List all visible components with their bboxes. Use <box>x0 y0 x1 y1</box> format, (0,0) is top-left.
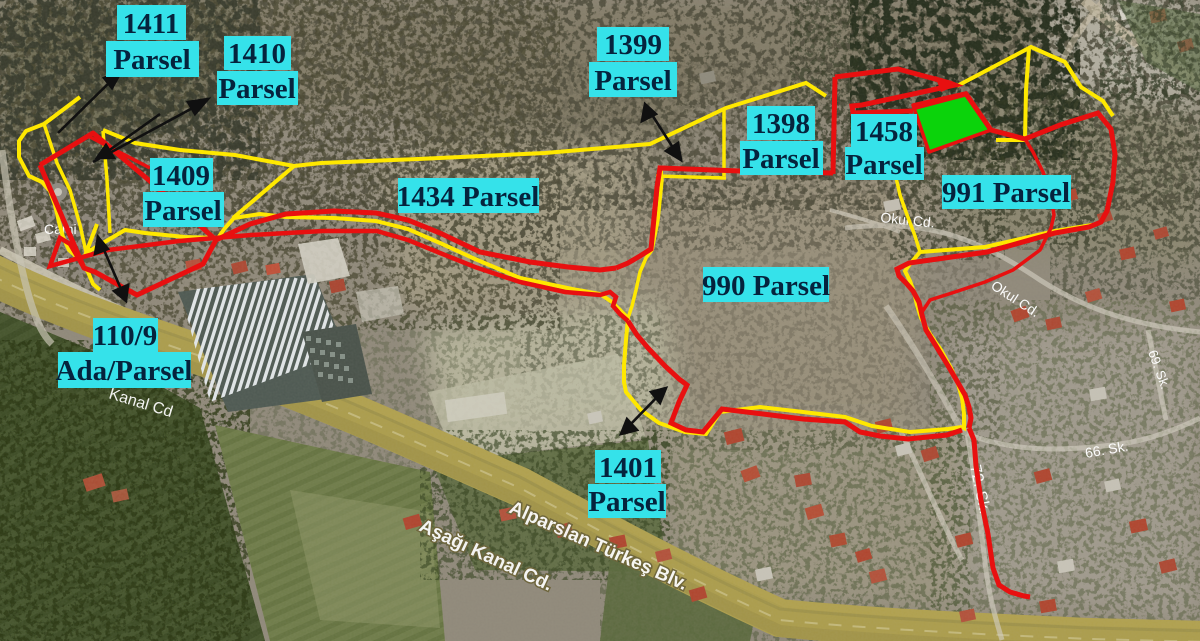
svg-text:1401: 1401 <box>599 452 657 484</box>
svg-text:1411: 1411 <box>123 8 179 40</box>
svg-text:1398: 1398 <box>752 108 810 140</box>
svg-text:Parsel: Parsel <box>113 44 190 76</box>
svg-text:990 Parsel: 990 Parsel <box>702 270 830 302</box>
svg-text:991 Parsel: 991 Parsel <box>942 177 1070 209</box>
svg-text:1399: 1399 <box>604 29 662 61</box>
svg-text:Parsel: Parsel <box>742 143 819 175</box>
svg-text:1458: 1458 <box>855 116 913 148</box>
svg-text:Parsel: Parsel <box>144 195 221 227</box>
svg-text:Parsel: Parsel <box>845 149 922 181</box>
svg-text:1409: 1409 <box>152 160 210 192</box>
svg-text:110/9: 110/9 <box>93 320 157 352</box>
svg-text:Parsel: Parsel <box>588 486 665 518</box>
svg-text:1434 Parsel: 1434 Parsel <box>397 181 540 213</box>
svg-text:1410: 1410 <box>228 38 286 70</box>
svg-text:Ada/Parsel: Ada/Parsel <box>56 355 193 387</box>
svg-text:Parsel: Parsel <box>594 65 671 97</box>
svg-text:Parsel: Parsel <box>218 73 295 105</box>
